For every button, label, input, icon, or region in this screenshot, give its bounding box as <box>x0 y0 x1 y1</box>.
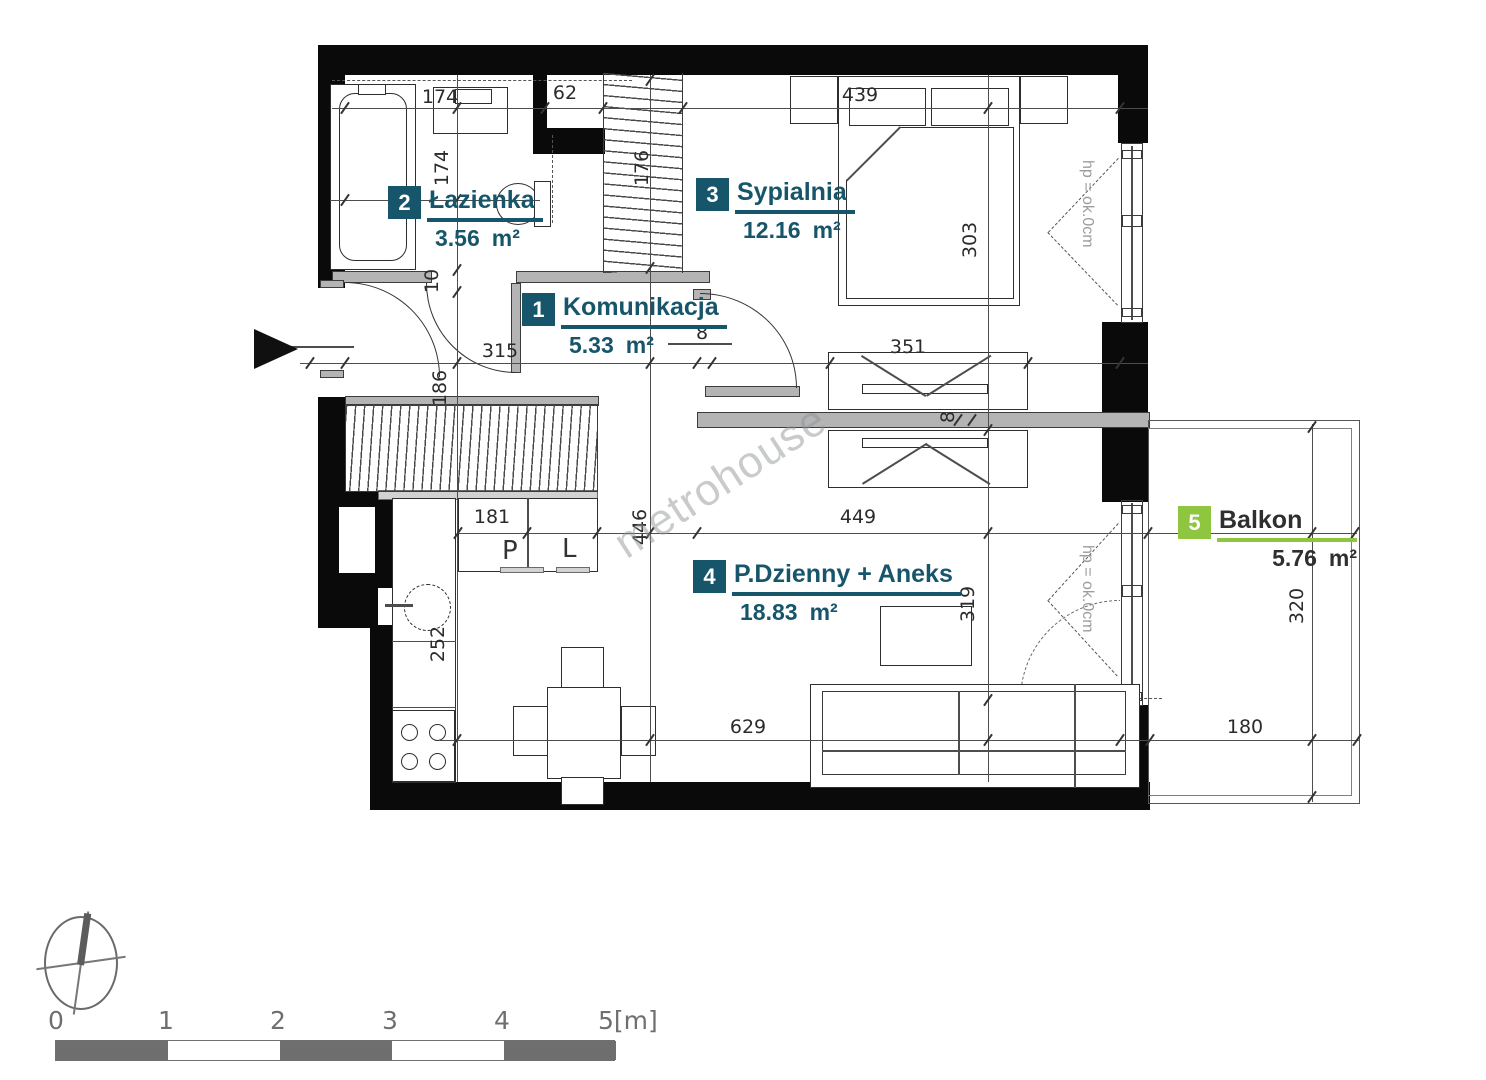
room-number-4: 4 <box>693 560 726 593</box>
room-number-5: 5 <box>1178 506 1211 539</box>
nightstand-right <box>1020 76 1068 124</box>
scale-segment <box>392 1041 504 1060</box>
dim-hall-width: 315 <box>470 340 530 362</box>
scale-label-0: 0 <box>48 1006 64 1035</box>
cabinet-letter-l: L <box>562 534 577 564</box>
bathroom-dashed-line <box>332 80 632 81</box>
bedroom-window-mullion <box>1131 146 1133 320</box>
entry-jamb-top <box>320 280 344 288</box>
cabinet-letter-p: P <box>502 536 518 566</box>
compass-icon <box>44 916 118 1010</box>
room-name-komunikacja: Komunikacja <box>561 293 727 329</box>
chair-top <box>561 647 604 688</box>
room-area-lazienka: 3.56m² <box>427 222 543 252</box>
stove <box>392 710 455 782</box>
scale-label-5m: 5[m] <box>598 1006 658 1035</box>
kitchen-counter-line2 <box>392 707 456 708</box>
scale-label-4: 4 <box>494 1006 510 1035</box>
sofa-divider <box>958 691 960 775</box>
dim-gap-8-mid: 8 <box>937 407 959 427</box>
living-window-bar2 <box>1122 585 1142 597</box>
room-name-pdzienny: P.Dzienny + Aneks <box>732 560 961 596</box>
burner-4 <box>429 753 446 770</box>
dim-bottom-width: 629 <box>718 716 778 738</box>
room-area-komunikacja: 5.33m² <box>561 329 727 359</box>
sofa-seat-line <box>822 750 1126 752</box>
dim-closet-height: 176 <box>631 138 653 198</box>
scale-segment <box>504 1041 616 1060</box>
dim-entry-height: 186 <box>429 358 451 418</box>
sofa-armrest-right <box>1074 684 1076 788</box>
dim-bedroom-depth: 303 <box>959 210 981 270</box>
room-label-pdzienny: 4 P.Dzienny + Aneks 18.83m² <box>693 560 961 626</box>
dim-line-v4 <box>1312 424 1313 802</box>
dim-balcony-height: 320 <box>1286 576 1308 636</box>
hp-annotation-bedroom: hp = ok.0cm <box>1078 160 1096 248</box>
dim-living-width: 449 <box>828 506 888 528</box>
room-area-balkon: 5.76m² <box>1217 542 1357 572</box>
dim-wardrobe-width: 351 <box>878 336 938 358</box>
sofa-inner <box>822 691 1126 775</box>
room-name-lazienka: Łazienka <box>427 186 543 222</box>
dim-kitchen-width: 181 <box>462 506 522 528</box>
entry-jamb-bottom <box>320 370 344 378</box>
wall-left-low <box>318 588 378 628</box>
scale-label-3: 3 <box>382 1006 398 1035</box>
room-area-sypialnia: 12.16m² <box>735 214 855 244</box>
living-window-bar1 <box>1122 505 1142 514</box>
dining-table <box>547 687 621 779</box>
scale-segment <box>56 1041 168 1060</box>
room-area-pdzienny: 18.83m² <box>732 596 961 626</box>
cabinet-handle-left <box>500 567 544 573</box>
room-number-2: 2 <box>388 186 421 219</box>
scale-label-1: 1 <box>158 1006 174 1035</box>
utility-shaft <box>336 504 378 576</box>
scale-bar <box>55 1040 615 1061</box>
wall-top <box>318 45 1148 75</box>
bathtub-tap <box>358 84 386 95</box>
burner-2 <box>429 724 446 741</box>
room-name-sypialnia: Sypialnia <box>735 178 855 214</box>
entrance-arrow-icon <box>254 329 298 369</box>
scale-segment <box>280 1041 392 1060</box>
bathroom-dashed-vline <box>552 135 553 223</box>
hp-annotation-living: hp = ok.0cm <box>1078 545 1096 633</box>
pillow-right <box>931 88 1009 126</box>
wall-left-mid <box>318 397 345 493</box>
room-label-balkon: 5 Balkon 5.76m² <box>1178 506 1357 572</box>
scale-label-2: 2 <box>270 1006 286 1035</box>
room-label-sypialnia: 3 Sypialnia 12.16m² <box>696 178 855 244</box>
dim-line-middle <box>300 363 1148 364</box>
bedroom-wardrobe-rail <box>862 384 988 394</box>
room-number-1: 1 <box>522 293 555 326</box>
floor-plan-canvas: 174 62 439 174 176 303 10 315 8 351 186 … <box>0 0 1486 1080</box>
dim-kitchen-height: 252 <box>427 614 449 674</box>
kitchen-cabinet-divider <box>527 498 529 572</box>
dim-bath-width: 174 <box>410 86 470 108</box>
room-number-3: 3 <box>696 178 729 211</box>
chair-bottom <box>561 777 604 805</box>
cabinet-handle-right <box>556 567 590 573</box>
room-label-lazienka: 2 Łazienka 3.56m² <box>388 186 543 252</box>
dim-line-v1 <box>457 75 458 782</box>
bedroom-wardrobe <box>828 352 1028 410</box>
bedroom-window-bar3 <box>1122 308 1142 317</box>
dim-wall-10: 10 <box>421 266 443 296</box>
wall-niche-bottom <box>533 128 605 154</box>
room-name-balkon: Balkon <box>1217 506 1357 542</box>
scale-segment <box>168 1041 280 1060</box>
burner-3 <box>401 753 418 770</box>
hall-wardrobe-hatch <box>345 404 598 492</box>
dim-balcony-width: 180 <box>1215 716 1275 738</box>
wall-right-top <box>1118 45 1148 143</box>
burner-1 <box>401 724 418 741</box>
dim-line-bottom <box>440 740 1360 741</box>
kitchen-faucet <box>385 604 413 607</box>
chair-left <box>513 706 548 756</box>
dim-niche: 62 <box>540 82 590 104</box>
bedroom-window-bar1 <box>1122 150 1142 159</box>
room-label-komunikacja: 1 Komunikacja 5.33m² <box>522 293 727 359</box>
dim-bedroom-width: 439 <box>830 84 890 106</box>
bedroom-window-bar2 <box>1122 215 1142 227</box>
